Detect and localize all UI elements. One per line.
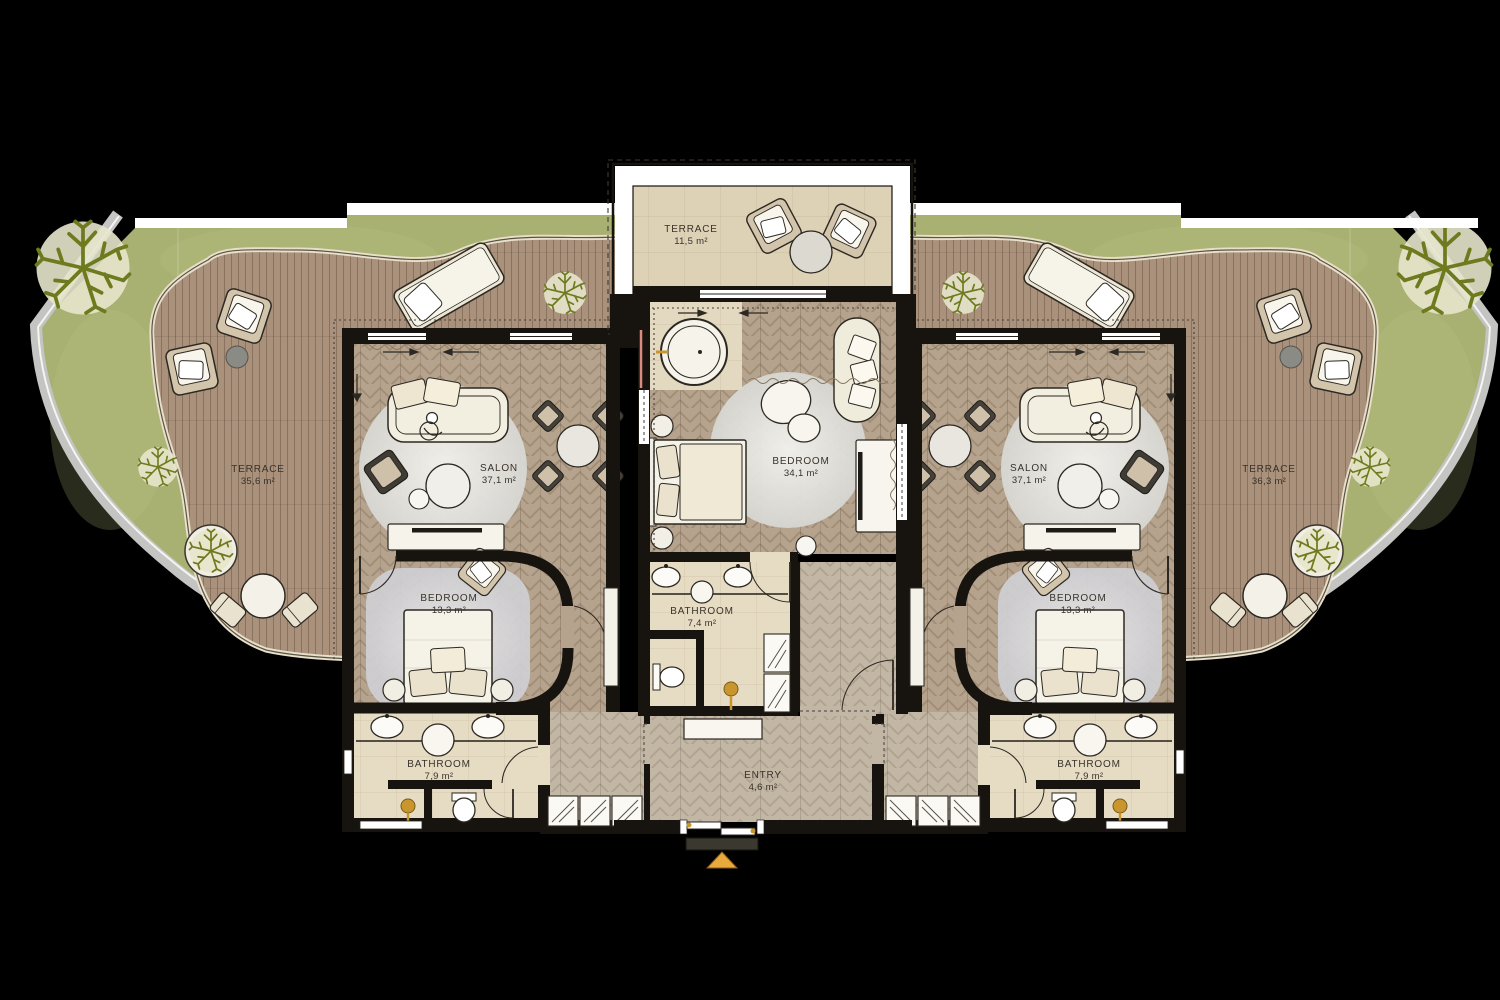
area-salon-right: 37,1 m² xyxy=(1012,475,1046,486)
area-bathroom-right: 7,9 m² xyxy=(1075,771,1104,782)
label-bathroom-center: BATHROOM xyxy=(670,606,733,617)
nightstand xyxy=(491,679,513,701)
tree-icon xyxy=(37,222,130,315)
area-bathroom-center: 7,4 m² xyxy=(688,618,717,629)
corridor-floor xyxy=(800,562,896,714)
entry-step xyxy=(686,838,758,850)
nightstand xyxy=(383,679,405,701)
chaise-daybed xyxy=(834,318,880,422)
terrace-table xyxy=(790,231,832,273)
door-jamb xyxy=(680,820,687,834)
upper-outline-band-right xyxy=(1390,218,1478,228)
door-opening xyxy=(750,552,790,562)
area-salon-left: 37,1 m² xyxy=(482,475,516,486)
area-terrace-right: 36,3 m² xyxy=(1252,476,1286,487)
deck-armchair xyxy=(165,342,220,397)
potted-tree-icon xyxy=(185,525,237,577)
label-terrace-right: TERRACE xyxy=(1242,464,1295,475)
area-entry: 4,6 m² xyxy=(749,782,778,793)
area-terrace-top: 11,5 m² xyxy=(674,236,708,247)
floor-plan-page: TERRACE 11,5 m² TERRACE 35,6 m² TERRACE … xyxy=(0,0,1500,1000)
label-terrace-top: TERRACE xyxy=(664,224,717,235)
door-opening xyxy=(538,745,550,785)
stool xyxy=(796,536,816,556)
center-unit xyxy=(608,160,916,868)
tv-console-center xyxy=(856,440,898,532)
bed xyxy=(400,610,496,712)
entry-bench xyxy=(684,719,762,739)
upper-outline-band xyxy=(347,203,618,215)
area-bedroom-left: 13,3 m² xyxy=(432,605,466,616)
area-bedroom-right: 13,3 m² xyxy=(1061,605,1095,616)
area-bedroom-center: 34,1 m² xyxy=(784,468,818,479)
built-in-cabinet xyxy=(604,588,618,686)
label-terrace-left: TERRACE xyxy=(231,464,284,475)
door-opening xyxy=(561,606,574,648)
terrace-wall-top xyxy=(615,166,910,186)
area-bathroom-left: 7,9 m² xyxy=(425,771,454,782)
area-terrace-left: 35,6 m² xyxy=(241,476,275,487)
label-bedroom-left: BEDROOM xyxy=(420,593,477,604)
label-bathroom-right: BATHROOM xyxy=(1057,759,1120,770)
tree-icon xyxy=(544,272,586,314)
label-entry: ENTRY xyxy=(744,770,782,781)
bed-center xyxy=(648,438,746,526)
door-jamb xyxy=(757,820,764,834)
floor-plan: TERRACE 11,5 m² TERRACE 35,6 m² TERRACE … xyxy=(0,0,1500,1000)
coffee-table xyxy=(426,464,470,508)
tree-icon xyxy=(138,447,178,487)
upper-outline-band-step xyxy=(135,218,347,228)
tv-console xyxy=(388,524,504,550)
label-salon-left: SALON xyxy=(480,463,518,474)
label-bedroom-right: BEDROOM xyxy=(1049,593,1106,604)
label-bedroom-center: BEDROOM xyxy=(772,456,829,467)
label-salon-right: SALON xyxy=(1010,463,1048,474)
label-bathroom-left: BATHROOM xyxy=(407,759,470,770)
coffee-table-small xyxy=(409,489,429,509)
side-table xyxy=(226,346,248,368)
